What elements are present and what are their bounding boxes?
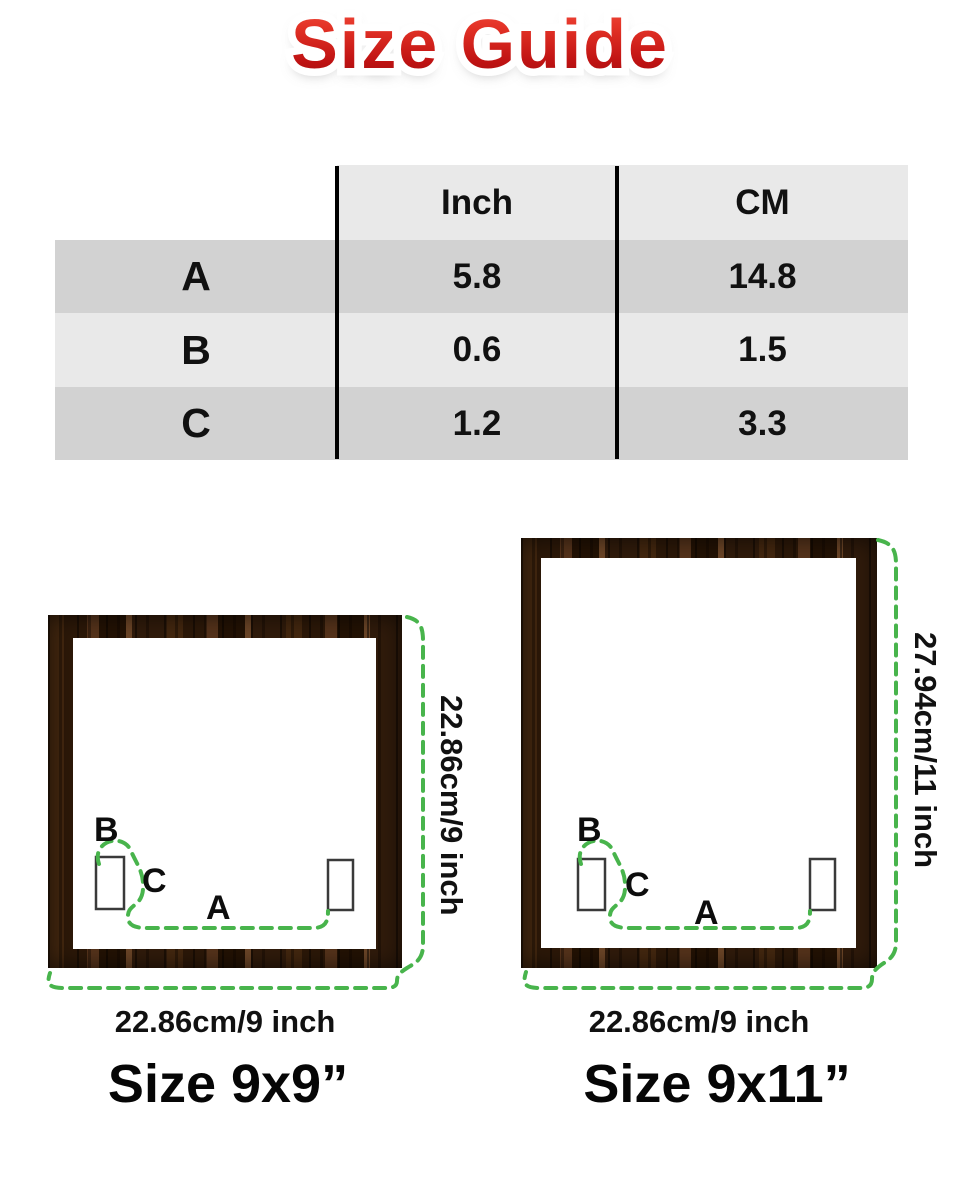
row-a-inch-value: 5.8 [337, 240, 617, 313]
table-row: B 0.6 1.5 [55, 313, 908, 387]
right-frame-height-label: 27.94cm/11 inch [903, 600, 947, 900]
table-row: A 5.8 14.8 [55, 240, 908, 313]
right-frame-width-label: 22.86cm/9 inch [521, 1004, 877, 1040]
page-title: Size Guide Size Guide [0, 2, 960, 94]
left-frame-size-label: Size 9x9” [28, 1053, 428, 1115]
left-frame-marker-b: B [94, 813, 119, 847]
table-header-row: Inch CM [55, 165, 908, 240]
row-c-inch-value: 1.2 [337, 387, 617, 460]
left-frame-marker-a: A [206, 891, 231, 925]
left-frame-width-label: 22.86cm/9 inch [48, 1004, 402, 1040]
table-header-empty [55, 165, 337, 240]
row-b-cm-value: 1.5 [617, 313, 908, 387]
right-frame-marker-b: B [577, 813, 602, 847]
right-frame-marker-c: C [625, 868, 650, 902]
table-column-divider [335, 166, 339, 459]
row-c-label: C [55, 387, 337, 460]
right-frame-size-label: Size 9x11” [517, 1053, 917, 1115]
right-frame-marker-a: A [694, 896, 719, 930]
row-c-cm-value: 3.3 [617, 387, 908, 460]
row-a-cm-value: 14.8 [617, 240, 908, 313]
row-b-label: B [55, 313, 337, 387]
table-header-cm: CM [617, 165, 908, 240]
table-row: C 1.2 3.3 [55, 387, 908, 460]
page-title-text: Size Guide [0, 2, 960, 86]
left-frame-marker-c: C [142, 864, 167, 898]
row-b-inch-value: 0.6 [337, 313, 617, 387]
table-header-inch: Inch [337, 165, 617, 240]
table-column-divider [615, 166, 619, 459]
left-frame-height-label: 22.86cm/9 inch [429, 655, 473, 955]
row-a-label: A [55, 240, 337, 313]
size-table: Inch CM A 5.8 14.8 B 0.6 1.5 C 1.2 3.3 [55, 165, 908, 460]
frame-9x11-opening [541, 558, 856, 948]
